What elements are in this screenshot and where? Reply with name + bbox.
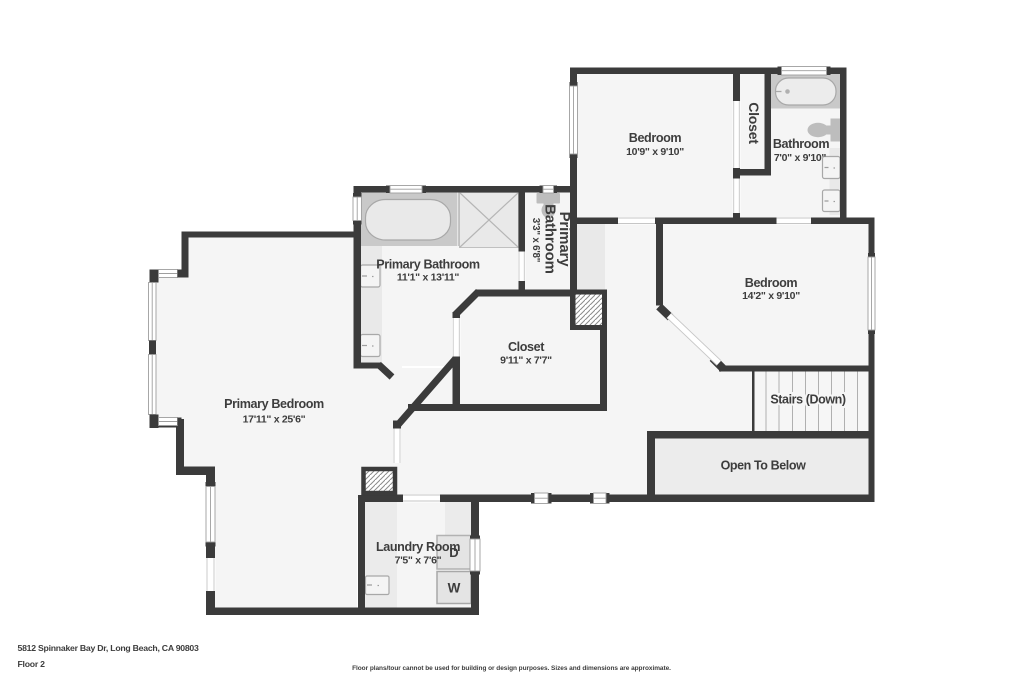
svg-text:Floor plans/tour cannot be use: Floor plans/tour cannot be used for buil… <box>352 665 671 672</box>
svg-text:Floor 2: Floor 2 <box>18 659 46 669</box>
svg-text:Bedroom: Bedroom <box>629 131 682 145</box>
svg-text:3'3" x 6'8": 3'3" x 6'8" <box>530 218 541 262</box>
svg-text:10'9" x 9'10": 10'9" x 9'10" <box>626 146 684 158</box>
svg-text:Closet: Closet <box>508 340 545 354</box>
svg-text:Primary Bedroom: Primary Bedroom <box>224 397 324 411</box>
svg-text:Stairs (Down): Stairs (Down) <box>770 393 846 407</box>
svg-text:Open To Below: Open To Below <box>721 459 807 473</box>
svg-text:PrimaryBathroom: PrimaryBathroom <box>542 204 574 274</box>
svg-text:Closet: Closet <box>746 102 762 144</box>
svg-text:Bathroom: Bathroom <box>773 137 829 151</box>
svg-text:7'0" x 9'10": 7'0" x 9'10" <box>774 152 827 164</box>
svg-text:9'11" x 7'7": 9'11" x 7'7" <box>500 355 552 367</box>
svg-text:Laundry Room: Laundry Room <box>376 540 460 554</box>
svg-text:5812 Spinnaker Bay Dr, Long Be: 5812 Spinnaker Bay Dr, Long Beach, CA 90… <box>18 643 200 653</box>
svg-text:Bedroom: Bedroom <box>745 276 798 290</box>
svg-text:17'11" x 25'6": 17'11" x 25'6" <box>243 414 306 426</box>
svg-text:7'5" x 7'6": 7'5" x 7'6" <box>395 555 442 567</box>
svg-text:11'1" x 13'11": 11'1" x 13'11" <box>397 272 459 284</box>
svg-text:W: W <box>448 581 461 596</box>
svg-text:14'2" x 9'10": 14'2" x 9'10" <box>742 290 800 302</box>
svg-text:Primary Bathroom: Primary Bathroom <box>376 258 480 272</box>
